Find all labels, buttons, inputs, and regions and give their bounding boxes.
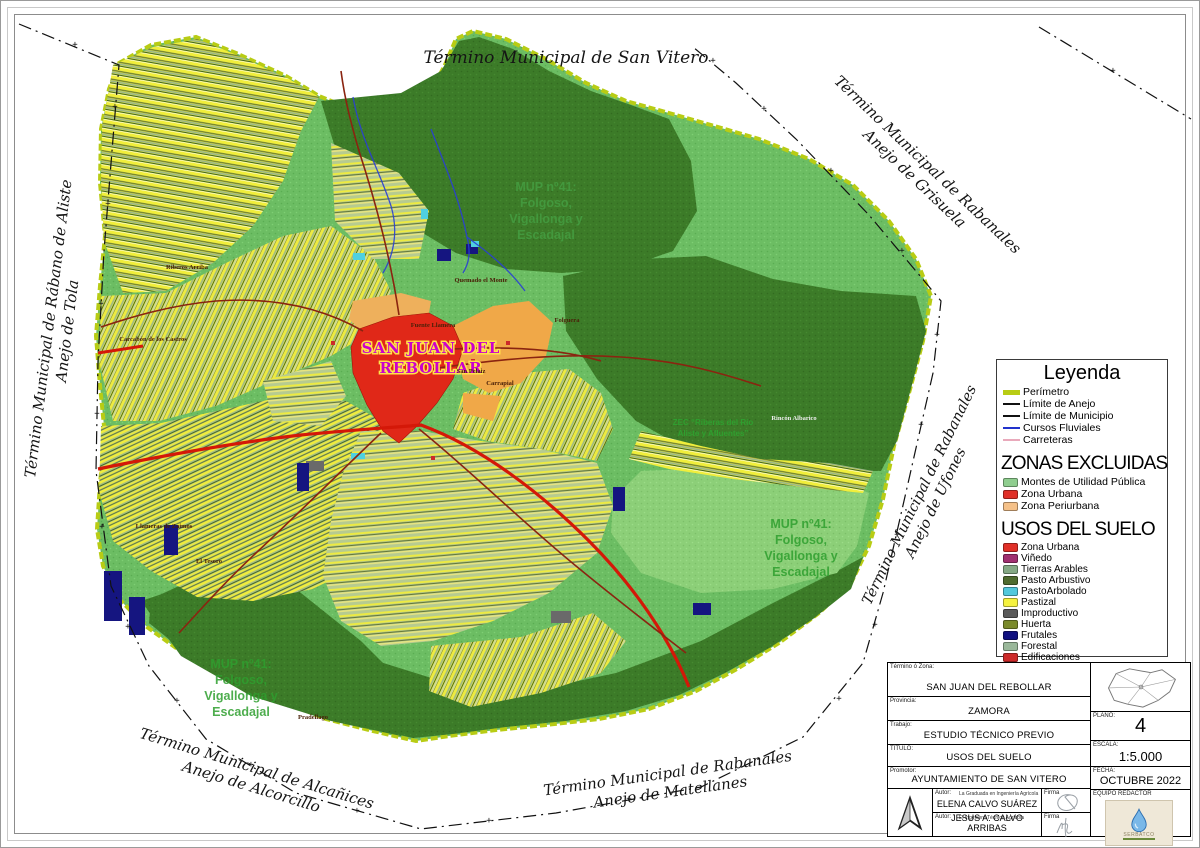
titleblock-row-termino-o-zona: Término ó Zona:SAN JUAN DEL REBOLLAR xyxy=(888,663,1090,697)
author-name: JESUS A. CALVO ARRIBAS xyxy=(933,813,1041,833)
boundary-plus-mark: + xyxy=(894,530,900,540)
equipo-redactor-label: EQUIPO REDACTOR xyxy=(1093,791,1152,797)
legend-item-label: Límite de Anejo xyxy=(1023,398,1095,410)
titleblock-field-escala: ESCALA:1:5.000 xyxy=(1091,741,1190,767)
legend-item-label: Cursos Fluviales xyxy=(1023,422,1101,434)
legend-item-tierras-arables: Tierras Arables xyxy=(1003,564,1161,575)
boundary-plus-mark: + xyxy=(72,40,78,50)
water-drop-icon xyxy=(1130,807,1148,833)
signature-scribble xyxy=(1052,791,1082,815)
boundary-plus-mark: + xyxy=(918,420,924,430)
mup-label-1: Folgoso, xyxy=(775,533,827,547)
boundary-plus-mark: + xyxy=(174,696,180,706)
legend-usos-title: USOS DEL SUELO xyxy=(1001,519,1161,541)
zec-label: Aliste y Afluentes” xyxy=(678,429,749,438)
legend-item-label: Viñedo xyxy=(1021,553,1052,564)
field-value: 1:5.000 xyxy=(1091,749,1190,764)
mup-label-0: Vigallonga y xyxy=(509,212,582,226)
firma-cell: Firma xyxy=(1042,813,1090,836)
field-label: FECHA: xyxy=(1093,768,1115,774)
place-label: Llameras de Zaimos xyxy=(136,523,193,530)
author-role: La Graduada en Ingeniería Agrícola y del… xyxy=(959,791,1039,797)
title-block: Término ó Zona:SAN JUAN DEL REBOLLARProv… xyxy=(887,662,1191,837)
legend-rect-swatch xyxy=(1003,576,1018,585)
author-cell: Autor:El Ingeniero Técnico AgrícolaJESUS… xyxy=(933,813,1042,836)
legend-rect-swatch xyxy=(1003,642,1018,651)
mup-label-0: Escadajal xyxy=(517,228,575,242)
legend-item-zona-urbana: Zona Urbana xyxy=(1003,542,1161,553)
legend-item-montes-de-utilidad-publica: Montes de Utilidad Pública xyxy=(1003,476,1161,488)
place-label: Quemado el Monte xyxy=(454,277,507,284)
legend-rect-swatch xyxy=(1003,543,1018,552)
place-label: Pradellago xyxy=(298,714,328,721)
location-thumbnail xyxy=(1091,663,1190,712)
field-value: ZAMORA xyxy=(888,706,1090,717)
signature-scribble xyxy=(1052,815,1082,839)
legend-item-limite-de-anejo: Límite de Anejo xyxy=(1003,398,1161,410)
author-row: Autor:El Ingeniero Técnico AgrícolaJESUS… xyxy=(933,812,1090,836)
legend-line-swatch xyxy=(1003,403,1020,405)
improductivo-patch xyxy=(551,611,571,623)
legend-item-label: Zona Urbana xyxy=(1021,488,1082,500)
boundary-plus-mark: + xyxy=(770,756,776,766)
field-label: Trabajo: xyxy=(890,722,912,728)
legend-line-swatch xyxy=(1003,390,1020,395)
map-sheet: +++++++++++++++++++++++ SAN JUAN DELREBO… xyxy=(0,0,1200,848)
boundary-plus-mark: + xyxy=(1110,66,1116,76)
titleblock-field-fecha: FECHA:OCTUBRE 2022 xyxy=(1091,767,1190,790)
place-label: Fuente Llamera xyxy=(411,322,456,329)
boundary-plus-mark: + xyxy=(836,694,842,704)
boundary-plus-mark: + xyxy=(112,102,118,112)
legend-item-vinedo: Viñedo xyxy=(1003,553,1161,564)
boundary-plus-mark: + xyxy=(872,620,878,630)
boundary-plus-mark: + xyxy=(486,816,492,826)
mup-label-0: Folgoso, xyxy=(520,196,572,210)
mup-label-1: Escadajal xyxy=(772,565,830,579)
legend-title: Leyenda xyxy=(1003,362,1161,385)
legend-item-label: Forestal xyxy=(1021,641,1057,652)
author-name: ELENA CALVO SUÁREZ xyxy=(933,799,1041,809)
legend-item-limite-de-municipio: Límite de Municipio xyxy=(1003,410,1161,422)
legend-item-forestal: Forestal xyxy=(1003,641,1161,652)
titleblock-row-titulo: TÍTULO:USOS DEL SUELO xyxy=(888,745,1090,767)
author-cell: Autor:La Graduada en Ingeniería Agrícola… xyxy=(933,789,1042,812)
field-value: OCTUBRE 2022 xyxy=(1091,775,1190,787)
field-value: SAN JUAN DEL REBOLLAR xyxy=(888,682,1090,693)
legend-item-frutales: Frutales xyxy=(1003,630,1161,641)
legend-rect-swatch xyxy=(1003,653,1018,662)
legend-zonas-title: ZONAS EXCLUIDAS xyxy=(1001,453,1161,475)
mup-label-2: Folgoso, xyxy=(215,673,267,687)
boundary-plus-mark: + xyxy=(626,794,632,804)
field-label: Término ó Zona: xyxy=(890,664,934,670)
mup-label-1: MUP nº41: xyxy=(770,517,831,531)
field-value: 4 xyxy=(1091,715,1190,738)
boundary-plus-mark: + xyxy=(248,760,254,770)
boundary-plus-mark: + xyxy=(710,56,716,66)
place-label: San Pelaiz xyxy=(457,368,486,375)
zec-label: ZEC “Riberas del Río xyxy=(673,418,754,427)
boundary-plus-mark: + xyxy=(354,806,360,816)
legend-rect-swatch xyxy=(1003,478,1018,487)
legend-item-huerta: Huerta xyxy=(1003,619,1161,630)
legend-item-zona-urbana: Zona Urbana xyxy=(1003,488,1161,500)
legend-line-swatch xyxy=(1003,439,1020,441)
equipo-redactor-logo: SERBATCO xyxy=(1105,800,1173,846)
legend-rect-swatch xyxy=(1003,554,1018,563)
place-label: Riberos Arriba xyxy=(166,264,209,271)
boundary-plus-mark: + xyxy=(761,104,767,114)
field-label: Provincia: xyxy=(890,698,916,704)
legend-rect-swatch xyxy=(1003,502,1018,511)
titleblock-field-plano: PLANO:4 xyxy=(1091,712,1190,741)
boundary-plus-mark: + xyxy=(94,409,100,419)
place-label: Rincón Albarico xyxy=(771,415,816,422)
legend-item-cursos-fluviales: Cursos Fluviales xyxy=(1003,422,1161,434)
legend-rect-swatch xyxy=(1003,609,1018,618)
legend-item-label: PastoArbolado xyxy=(1021,586,1087,597)
mup-label-0: MUP nº41: xyxy=(515,180,576,194)
boundary-plus-mark: + xyxy=(105,199,111,209)
boundary-plus-mark: + xyxy=(828,166,834,176)
firma-cell: Firma xyxy=(1042,789,1090,812)
mup-label-2: Vigallonga y xyxy=(204,689,277,703)
boundary-plus-mark: + xyxy=(899,246,905,256)
equipo-redactor-cell: EQUIPO REDACTOR SERBATCO xyxy=(1091,790,1190,836)
place-label: Carcabón de los Castros xyxy=(119,336,187,343)
legend-rect-swatch xyxy=(1003,598,1018,607)
legend-item-label: Huerta xyxy=(1021,619,1051,630)
legend-item-carreteras: Carreteras xyxy=(1003,434,1161,446)
titleblock-row-trabajo: Trabajo:ESTUDIO TÉCNICO PREVIO xyxy=(888,721,1090,745)
north-arrow xyxy=(888,789,933,836)
titleblock-row-promotor: Promotor:AYUNTAMIENTO DE SAN VITERO xyxy=(888,767,1090,789)
legend-item-label: Perímetro xyxy=(1023,386,1069,398)
legend-item-label: Improductivo xyxy=(1021,608,1078,619)
legend-rect-swatch xyxy=(1003,565,1018,574)
place-label: El Tesoro xyxy=(196,558,222,565)
legend-item-label: Tierras Arables xyxy=(1021,564,1088,575)
mup-label-2: MUP nº41: xyxy=(210,657,271,671)
legend-item-label: Pastizal xyxy=(1021,597,1056,608)
boundary-plus-mark: + xyxy=(934,330,940,340)
legend-item-label: Zona Periurbana xyxy=(1021,500,1099,512)
place-label: Carrapial xyxy=(486,380,514,387)
legend-rect-swatch xyxy=(1003,631,1018,640)
field-value: ESTUDIO TÉCNICO PREVIO xyxy=(888,730,1090,741)
legend-item-improductivo: Improductivo xyxy=(1003,608,1161,619)
legend-item-label: Pasto Arbustivo xyxy=(1021,575,1090,586)
legend-line-swatch xyxy=(1003,415,1020,417)
legend-rect-swatch xyxy=(1003,587,1018,596)
legend-item-zona-periurbana: Zona Periurbana xyxy=(1003,500,1161,512)
legend-panel: Leyenda PerímetroLímite de AnejoLímite d… xyxy=(996,359,1168,657)
legend-line-swatch xyxy=(1003,427,1020,429)
place-label: Folguera xyxy=(555,317,581,324)
field-value: AYUNTAMIENTO DE SAN VITERO xyxy=(888,774,1090,785)
legend-item-label: Límite de Municipio xyxy=(1023,410,1113,422)
legend-rect-swatch xyxy=(1003,490,1018,499)
mup-label-1: Vigallonga y xyxy=(764,549,837,563)
boundary-plus-mark: + xyxy=(98,299,104,309)
author-row: Autor:La Graduada en Ingeniería Agrícola… xyxy=(933,789,1090,812)
author-label: Autor: xyxy=(935,790,951,796)
field-label: ESCALA: xyxy=(1093,742,1118,748)
field-value: USOS DEL SUELO xyxy=(888,752,1090,763)
legend-item-perimetro: Perímetro xyxy=(1003,386,1161,398)
legend-item-label: Montes de Utilidad Pública xyxy=(1021,476,1145,488)
boundary-plus-mark: + xyxy=(125,622,131,632)
legend-rect-swatch xyxy=(1003,620,1018,629)
legend-item-label: Carreteras xyxy=(1023,434,1073,446)
legend-item-label: Zona Urbana xyxy=(1021,542,1079,553)
mup-label-2: Escadajal xyxy=(212,705,270,719)
boundary-plus-mark: + xyxy=(99,522,105,532)
legend-item-pastizal: Pastizal xyxy=(1003,597,1161,608)
logo-text: SERBATCO xyxy=(1123,833,1154,840)
legend-item-pastoarbolado: PastoArbolado xyxy=(1003,586,1161,597)
legend-item-pasto-arbustivo: Pasto Arbustivo xyxy=(1003,575,1161,586)
titleblock-row-provincia: Provincia:ZAMORA xyxy=(888,697,1090,721)
town-name-label: SAN JUAN DEL xyxy=(362,339,501,357)
legend-item-label: Frutales xyxy=(1021,630,1057,641)
